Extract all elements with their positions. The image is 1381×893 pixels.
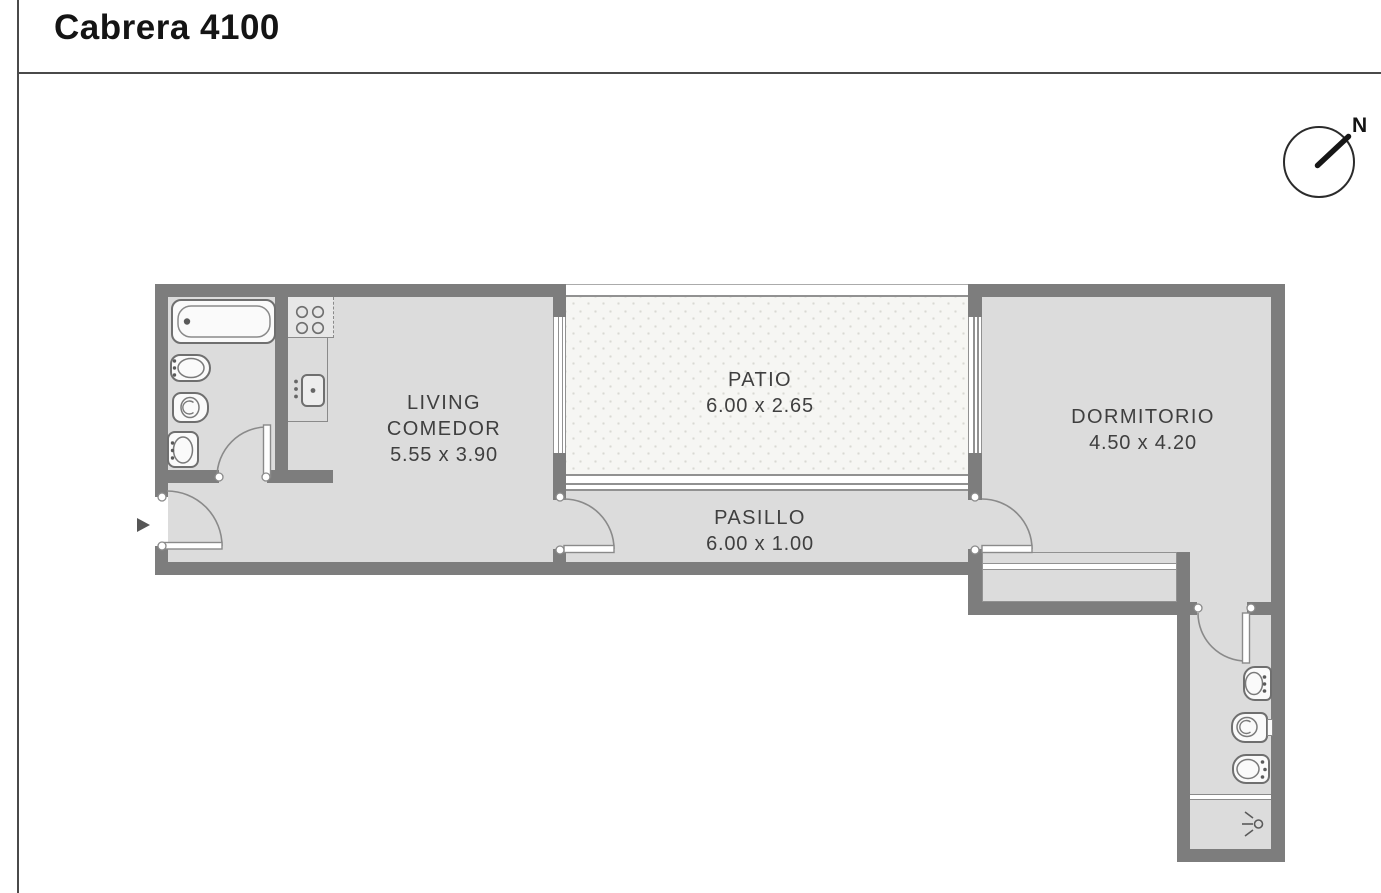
kitchen-sink-drain [311,388,316,393]
room-dimensions: 6.00 x 2.65 [660,393,860,419]
entrance-door-leaf [164,543,222,550]
compass-needle-icon [1318,137,1349,166]
entrance-door-arc [167,491,222,546]
bedroom-label: DORMITORIO 4.50 x 4.20 [1023,404,1263,456]
bathtub-drain [184,318,190,324]
bedroom-bath-door-arc [1198,613,1246,661]
room-name: PASILLO [660,505,860,531]
toilet2-seat [1240,721,1251,734]
hall-bedroom-door-leaf [982,546,1032,553]
toilet-seat [183,401,194,414]
bidet-faucet-dots [173,359,176,376]
hall-bedroom-door-arc [982,499,1032,549]
bidet2-faucet-dots [1261,760,1267,779]
kitchen-faucet-dots [294,380,298,399]
washbasin2-faucet-dots [1263,675,1267,693]
room-dimensions: 5.55 x 3.90 [334,442,554,468]
bathtub-basin [178,306,270,337]
room-name: PATIO [660,367,860,393]
bedroom-bath-door-leaf [1243,613,1250,663]
room-name: COMEDOR [334,416,554,442]
bathroom-door-leaf [264,425,271,477]
washbasin-faucet-dots [171,441,174,459]
patio-label: PATIO 6.00 x 2.65 [660,367,860,419]
hall-living-door-leaf [564,546,614,553]
hall-living-door-arc [564,499,614,549]
living-room-label: LIVING COMEDOR 5.55 x 3.90 [334,390,554,468]
stove-burners [297,307,324,334]
hallway-label: PASILLO 6.00 x 1.00 [660,505,860,557]
room-dimensions: 6.00 x 1.00 [660,531,860,557]
shower-icon [1242,812,1263,836]
bidet-bowl [178,359,204,378]
room-name: LIVING [334,390,554,416]
bidet2-bowl [1237,760,1259,779]
washbasin2-bowl [1246,673,1263,695]
washbasin-bowl [174,437,193,463]
room-dimensions: 4.50 x 4.20 [1023,430,1263,456]
room-name: DORMITORIO [1023,404,1263,430]
bathroom-door-arc [217,427,267,477]
floor-plan-page: Cabrera 4100 N [0,0,1381,893]
